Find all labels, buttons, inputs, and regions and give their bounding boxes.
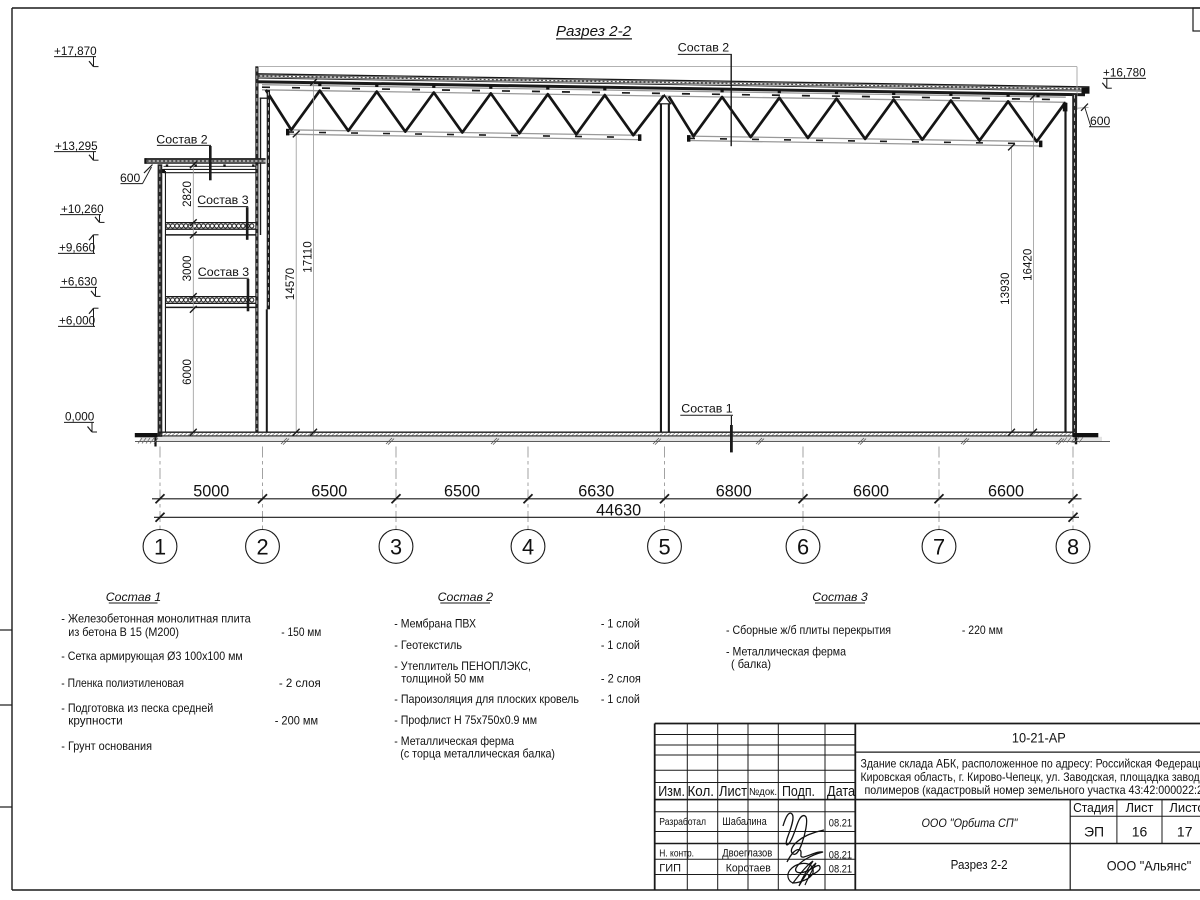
svg-text:- Мембрана ПВХ: - Мембрана ПВХ (394, 617, 476, 630)
svg-text:крупности: крупности (68, 715, 122, 728)
svg-text:Лист: Лист (1126, 800, 1154, 815)
svg-text:2820: 2820 (181, 181, 194, 207)
svg-text:6600: 6600 (988, 482, 1024, 500)
svg-text:- Металлическая ферма: - Металлическая ферма (726, 646, 847, 659)
svg-text:Разрез 2-2: Разрез 2-2 (951, 858, 1008, 872)
svg-text:6500: 6500 (311, 482, 347, 500)
svg-text:- 1 слой: - 1 слой (601, 617, 640, 630)
svg-text:Разработал: Разработал (659, 816, 706, 828)
svg-text:17: 17 (1177, 824, 1193, 840)
svg-text:+6,000: +6,000 (59, 315, 96, 328)
svg-text:08.21: 08.21 (829, 849, 852, 861)
svg-text:- 220 мм: - 220 мм (962, 624, 1003, 637)
svg-text:Состав 2: Состав 2 (678, 41, 729, 55)
svg-text:600: 600 (120, 171, 141, 185)
svg-text:( балка): ( балка) (731, 658, 771, 671)
svg-text:- Пароизоляция для плоских кро: - Пароизоляция для плоских кровель (394, 693, 579, 706)
svg-text:3000: 3000 (181, 256, 194, 282)
svg-text:+6,630: +6,630 (61, 276, 98, 289)
svg-text:6600: 6600 (853, 482, 889, 500)
svg-text:Состав 3: Состав 3 (197, 193, 248, 207)
svg-text:5000: 5000 (193, 482, 229, 500)
svg-text:из бетона В 15 (М200): из бетона В 15 (М200) (68, 626, 179, 639)
svg-text:08.21: 08.21 (829, 863, 852, 875)
svg-text:+10,260: +10,260 (61, 203, 104, 216)
svg-text:Коротаев: Коротаев (726, 863, 771, 875)
svg-text:600: 600 (1090, 114, 1111, 128)
svg-text:+9,660: +9,660 (59, 242, 96, 255)
svg-text:Состав 3: Состав 3 (198, 265, 249, 279)
svg-text:(с торца металлическая балка): (с торца металлическая балка) (400, 747, 555, 760)
svg-text:- Подготовка из песка средней: - Подготовка из песка средней (61, 702, 213, 715)
svg-text:Кировская область, г. Кирово-Ч: Кировская область, г. Кирово-Чепецк, ул.… (861, 771, 1200, 784)
svg-text:10-21-АР: 10-21-АР (1012, 730, 1066, 746)
svg-text:- Железобетонная монолитная п: - Железобетонная монолитная плита (61, 613, 251, 626)
svg-text:2: 2 (256, 534, 268, 559)
svg-text:- Утеплитель ПЕНОПЛЭКС,: - Утеплитель ПЕНОПЛЭКС, (394, 660, 531, 673)
svg-text:6500: 6500 (444, 482, 480, 500)
svg-text:13930: 13930 (999, 273, 1012, 305)
svg-text:08.21: 08.21 (829, 818, 852, 830)
svg-text:- Профлист Н 75х750х0.9 мм: - Профлист Н 75х750х0.9 мм (394, 714, 537, 727)
svg-text:3: 3 (390, 534, 402, 559)
svg-text:Состав 1: Состав 1 (681, 402, 732, 416)
svg-text:- Металлическая ферма: - Металлическая ферма (394, 735, 514, 748)
svg-text:полимеров (кадастровый номер з: полимеров (кадастровый номер земельного … (865, 784, 1200, 797)
svg-text:ООО "Альянс": ООО "Альянс" (1107, 858, 1192, 874)
svg-text:+13,295: +13,295 (55, 140, 98, 153)
svg-text:7: 7 (933, 534, 945, 559)
svg-text:- 150 мм: - 150 мм (281, 626, 321, 639)
svg-text:- 1 слой: - 1 слой (601, 693, 640, 706)
svg-text:ГИП: ГИП (659, 863, 681, 875)
svg-text:Состав 2: Состав 2 (156, 132, 207, 146)
svg-text:Здание склада АБК, расположенн: Здание склада АБК, расположенное по адре… (861, 758, 1200, 771)
svg-text:- Грунт основания: - Грунт основания (61, 740, 152, 753)
svg-text:Н. контр.: Н. контр. (659, 848, 694, 859)
svg-text:- 2 слоя: - 2 слоя (279, 677, 321, 690)
svg-text:0,000: 0,000 (65, 411, 95, 424)
svg-text:+16,780: +16,780 (1103, 66, 1146, 79)
svg-text:6800: 6800 (716, 482, 752, 500)
svg-text:Состав 2: Состав 2 (438, 590, 494, 604)
svg-text:Состав 1: Состав 1 (106, 590, 162, 604)
svg-text:Состав 3: Состав 3 (812, 590, 868, 604)
svg-text:1: 1 (154, 534, 166, 559)
svg-text:Шабалина: Шабалина (722, 816, 767, 828)
svg-text:44630: 44630 (596, 501, 641, 519)
svg-text:Подп.: Подп. (782, 784, 815, 800)
svg-text:6000: 6000 (181, 359, 194, 385)
svg-text:ЭП: ЭП (1084, 824, 1104, 840)
svg-text:4: 4 (522, 534, 534, 559)
svg-text:16: 16 (1132, 824, 1148, 840)
svg-text:6: 6 (797, 534, 809, 559)
svg-text:5: 5 (658, 534, 670, 559)
svg-text:Двоеглазов: Двоеглазов (722, 847, 772, 859)
svg-text:Разрез 2-2: Разрез 2-2 (556, 23, 632, 40)
svg-text:толщиной 50 мм: толщиной 50 мм (401, 672, 484, 685)
svg-text:8: 8 (1067, 534, 1079, 559)
svg-text:Лист: Лист (719, 784, 747, 800)
svg-text:Листов: Листов (1169, 800, 1200, 815)
svg-text:14570: 14570 (284, 268, 297, 300)
svg-text:Кол.: Кол. (688, 784, 715, 800)
svg-text:+17,870: +17,870 (54, 45, 97, 58)
svg-text:16420: 16420 (1021, 249, 1034, 281)
svg-text:Изм.: Изм. (658, 784, 685, 800)
svg-text:6630: 6630 (578, 482, 614, 500)
svg-text:- 2 слоя: - 2 слоя (601, 672, 641, 685)
svg-text:№док.: №док. (749, 787, 777, 798)
svg-text:- Геотекстиль: - Геотекстиль (394, 639, 462, 652)
svg-text:- Сборные ж/б плиты перекрытия: - Сборные ж/б плиты перекрытия (726, 624, 891, 637)
svg-text:- Сетка армирующая Ø3 100х100: - Сетка армирующая Ø3 100х100 мм (61, 650, 242, 663)
svg-text:- 1 слой: - 1 слой (601, 639, 640, 652)
svg-text:17110: 17110 (301, 241, 314, 272)
svg-text:Дата: Дата (827, 784, 856, 800)
svg-text:ООО "Орбита СП": ООО "Орбита СП" (922, 816, 1019, 830)
svg-text:- Пленка полиэтиленовая: - Пленка полиэтиленовая (61, 677, 184, 690)
svg-text:Стадия: Стадия (1073, 800, 1114, 815)
svg-text:- 200 мм: - 200 мм (275, 715, 318, 728)
